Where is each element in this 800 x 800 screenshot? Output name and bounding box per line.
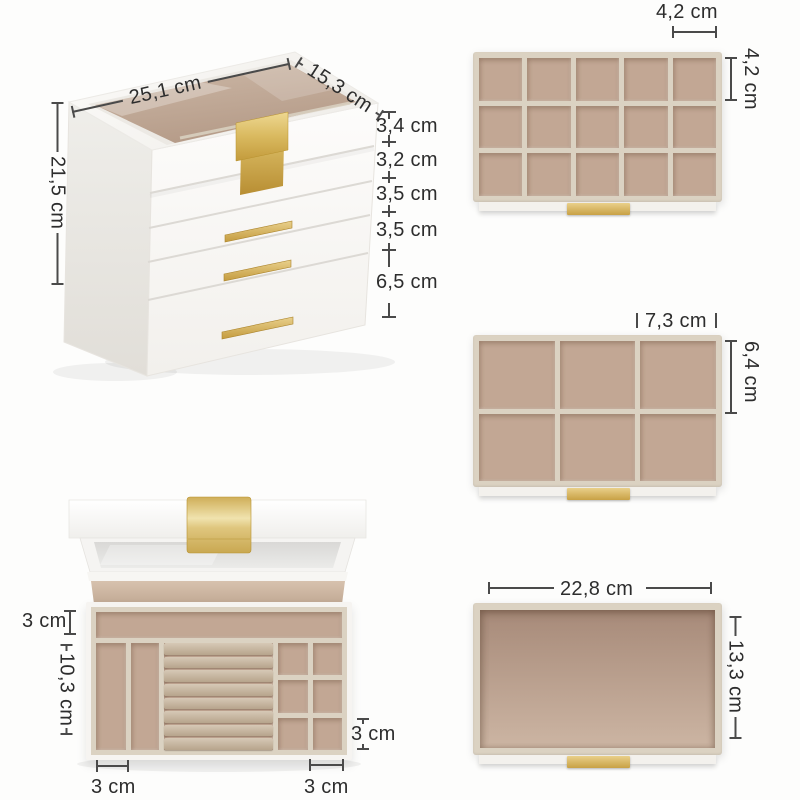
left-slot-1	[96, 643, 126, 750]
compartment-cell	[576, 106, 619, 149]
dim-line	[65, 644, 67, 651]
small-compartment-grid	[278, 643, 342, 750]
dim-drawer-width-line-right	[646, 587, 712, 589]
dim-back-strip: 3 cm	[22, 610, 67, 632]
dim-box-height-label: 21,5 cm	[46, 152, 69, 233]
compartment-cell	[479, 341, 555, 409]
compartment-cell	[576, 58, 619, 101]
dim-drawer-depth: 13,3 cm	[724, 616, 747, 739]
dim-tray-depth: 10,3 cm	[55, 644, 78, 735]
ring-roll-section	[164, 643, 273, 750]
compartment-cell	[278, 643, 308, 675]
compartment-cell	[640, 414, 716, 482]
dim-tick	[715, 313, 717, 328]
dim-small-cell-height: 3 cm	[351, 723, 396, 745]
dim-small-cell-width-line	[309, 764, 344, 766]
layer-segment	[388, 243, 390, 267]
dim-left-slot-line	[96, 765, 129, 767]
ring-roll	[164, 657, 273, 669]
dim-line	[297, 61, 303, 66]
dim-layer-3: 3,5 cm	[376, 183, 438, 205]
dim-drawer-depth-label: 13,3 cm	[724, 636, 747, 717]
compartment-cell	[560, 341, 636, 409]
deep-drawer	[473, 603, 722, 755]
dim-line	[65, 728, 67, 735]
dim-tray15-cell-height: 4,2 cm	[740, 48, 762, 110]
box-back-rim	[87, 572, 348, 581]
layer-segment	[388, 303, 390, 318]
dim-box-height: 21,5 cm	[46, 102, 69, 285]
ring-roll	[164, 643, 273, 655]
compartment-cell	[527, 153, 570, 196]
ring-roll	[164, 725, 273, 737]
dim-tray15-cell-height-line	[730, 57, 732, 101]
dim-drawer-width: 22,8 cm	[560, 578, 633, 600]
compartment-cell	[479, 153, 522, 196]
compartment-cell	[576, 153, 619, 196]
dim-tray15-cell-width-line	[672, 31, 717, 33]
drawer-handle	[567, 756, 630, 768]
drawer-handle	[567, 203, 630, 215]
ring-roll	[164, 711, 273, 723]
dim-tray6-cell-height-line	[730, 340, 732, 414]
compartment-cell	[640, 341, 716, 409]
dim-small-cell-width: 3 cm	[304, 776, 349, 798]
back-compartment	[96, 612, 342, 638]
large-compartment-tray	[473, 335, 722, 487]
dim-line	[734, 616, 736, 636]
dim-back-strip-line	[69, 610, 71, 635]
compartment-cell	[527, 58, 570, 101]
compartment-cell	[479, 414, 555, 482]
compartment-cell	[673, 106, 716, 149]
layer-segment	[388, 205, 390, 217]
layer-segment	[388, 171, 390, 183]
ring-roll	[164, 670, 273, 682]
small-compartment-tray	[473, 52, 722, 202]
dim-line	[72, 99, 123, 112]
compartment-cell	[624, 153, 667, 196]
ring-roll	[164, 738, 273, 750]
compartment-cell	[313, 718, 343, 750]
compartment-cell	[479, 106, 522, 149]
dim-small-cell-height-tick-bottom	[362, 744, 364, 750]
dim-layer-5: 6,5 cm	[376, 271, 438, 293]
open-top-tray	[86, 602, 352, 760]
dim-drawer-width-line-left	[488, 587, 554, 589]
lid-clasp	[187, 497, 251, 553]
dim-line	[734, 717, 736, 739]
jewelry-box-dimension-diagram: 25,1 cm 15,3 cm 21,5 cm 3,4 cm 3,2 cm 3,…	[0, 0, 800, 800]
compartment-cell	[479, 58, 522, 101]
box-left-face	[64, 102, 152, 376]
compartment-cell	[673, 58, 716, 101]
compartment-cell	[278, 680, 308, 712]
compartment-cell	[278, 718, 308, 750]
dim-left-slot: 3 cm	[91, 776, 136, 798]
compartment-cell	[560, 414, 636, 482]
compartment-cell	[313, 643, 343, 675]
drawer-handle	[567, 488, 630, 500]
compartment-cell	[624, 106, 667, 149]
left-slot-2	[131, 643, 159, 750]
dim-tick	[636, 313, 638, 328]
dim-line	[56, 233, 58, 285]
dim-line	[56, 102, 58, 152]
dim-tray-depth-label: 10,3 cm	[55, 651, 78, 728]
dim-layer-2: 3,2 cm	[376, 149, 438, 171]
compartment-cell	[527, 106, 570, 149]
compartment-cell	[673, 153, 716, 196]
compartment-cell	[313, 680, 343, 712]
dim-layer-1: 3,4 cm	[376, 115, 438, 137]
dim-layer-4: 3,5 cm	[376, 219, 438, 241]
ring-roll	[164, 698, 273, 710]
drawer-interior	[480, 610, 715, 748]
tray-main-row	[96, 643, 342, 750]
hinge-velvet-strip	[91, 581, 345, 604]
compartment-cell	[624, 58, 667, 101]
dim-tray6-cell-width: 7,3 cm	[645, 310, 707, 332]
ring-roll	[164, 684, 273, 696]
dim-tray15-cell-width: 4,2 cm	[656, 1, 718, 23]
dim-tray6-cell-height: 6,4 cm	[740, 341, 762, 403]
